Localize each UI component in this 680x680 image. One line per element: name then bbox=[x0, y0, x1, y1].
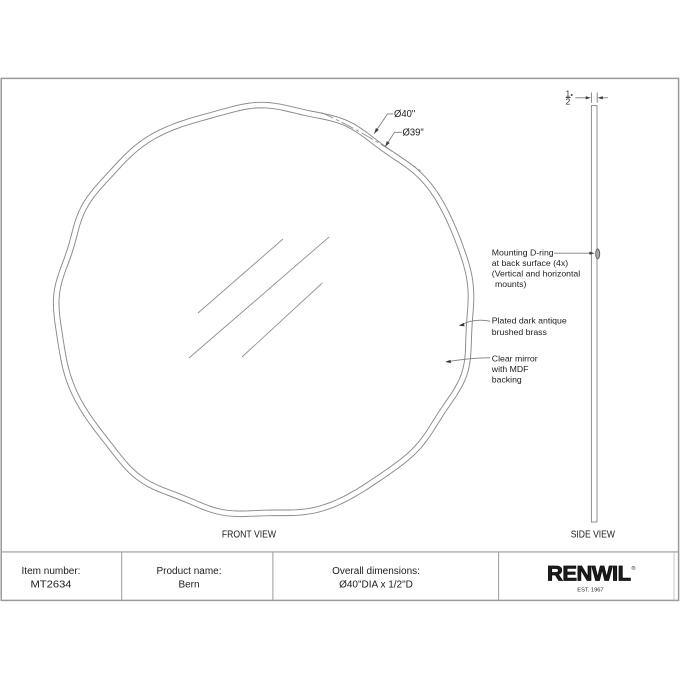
svg-text:brushed brass: brushed brass bbox=[492, 327, 548, 337]
svg-text:(Vertical and horizontal: (Vertical and horizontal bbox=[492, 269, 580, 279]
svg-text:Product name:: Product name: bbox=[156, 566, 221, 577]
svg-text:Ø40": Ø40" bbox=[394, 109, 416, 120]
svg-text:Item number:: Item number: bbox=[22, 566, 81, 577]
svg-text:RENWIL: RENWIL bbox=[547, 563, 631, 586]
svg-text:mounts): mounts) bbox=[495, 279, 526, 289]
svg-text:Ø39": Ø39" bbox=[403, 127, 425, 138]
svg-text:EST. 1967: EST. 1967 bbox=[577, 588, 603, 594]
svg-text:®: ® bbox=[632, 565, 636, 572]
svg-text:Mounting D-ring: Mounting D-ring bbox=[492, 247, 554, 257]
svg-text:Overall dimensions:: Overall dimensions: bbox=[332, 566, 420, 577]
svg-text:with MDF: with MDF bbox=[491, 364, 529, 374]
svg-text:Ø40"DIA x 1/2"D: Ø40"DIA x 1/2"D bbox=[339, 579, 413, 590]
svg-text:FRONT VIEW: FRONT VIEW bbox=[222, 528, 276, 540]
svg-text:backing: backing bbox=[492, 374, 522, 384]
svg-text:Clear mirror: Clear mirror bbox=[492, 354, 538, 364]
svg-text:SIDE VIEW: SIDE VIEW bbox=[571, 528, 615, 540]
svg-text:2: 2 bbox=[566, 98, 571, 107]
svg-text:Bern: Bern bbox=[178, 579, 199, 590]
svg-text:Plated dark antique: Plated dark antique bbox=[492, 316, 567, 326]
svg-text:at back surface (4x): at back surface (4x) bbox=[492, 258, 568, 268]
svg-text:MT2634: MT2634 bbox=[31, 579, 72, 590]
